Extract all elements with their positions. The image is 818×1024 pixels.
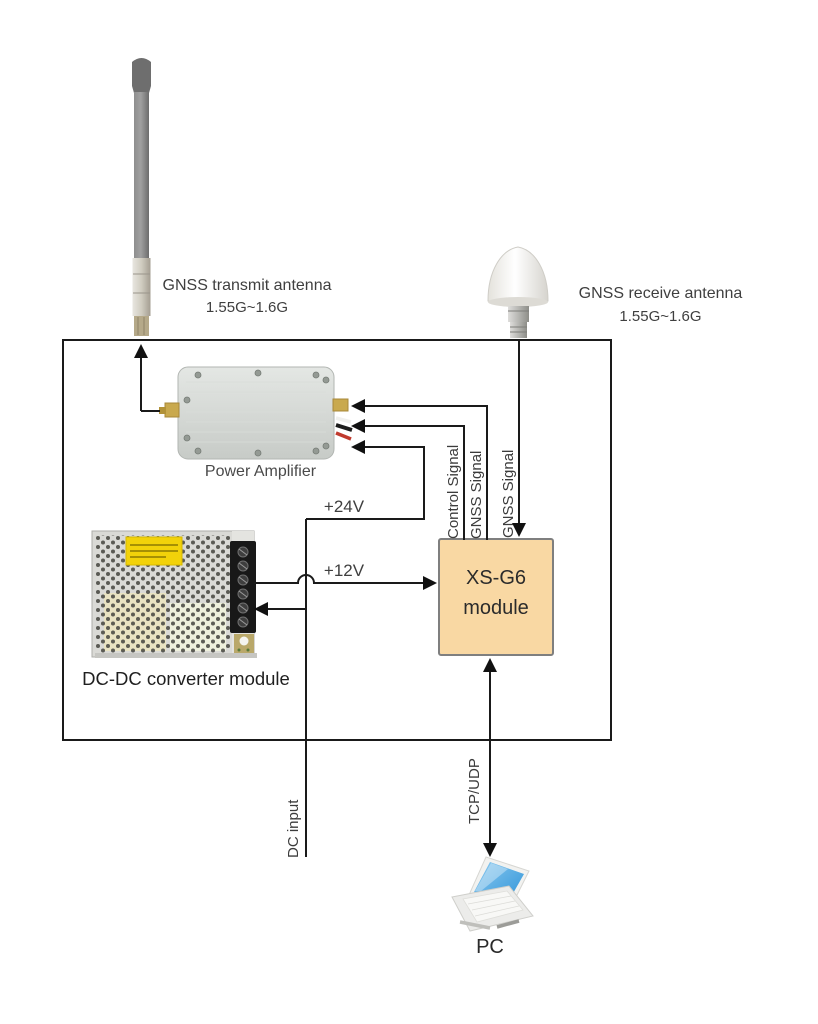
tcp-udp-label: TCP/UDP (466, 756, 483, 824)
antenna-mount (508, 306, 529, 322)
dc-input-label: DC input (285, 788, 302, 858)
supply-24v-label: +24V (316, 497, 372, 517)
pc-laptop (452, 857, 533, 931)
arrow-control-into-pa (351, 419, 365, 433)
pa-wire-red (336, 433, 351, 439)
arrow-24v-into-pa (351, 440, 365, 454)
transmit-antenna-freq: 1.55G~1.6G (148, 299, 346, 316)
arrow-up-to-antenna (134, 344, 148, 358)
control-signal-label: Control Signal (445, 431, 462, 539)
gnss-block-diagram: GNSS transmit antenna 1.55G~1.6G GNSS re… (0, 0, 818, 1024)
antenna-rod (134, 92, 149, 258)
arrow-dc-into-converter (254, 602, 268, 616)
gnss-signal-tx-label: GNSS Signal (468, 439, 485, 539)
pc-label: PC (458, 936, 522, 959)
receive-antenna-freq: 1.55G~1.6G (563, 308, 758, 325)
arrow-tcp-up (483, 658, 497, 672)
receive-antenna-label: GNSS receive antenna (563, 285, 758, 303)
supply-12v-label: +12V (316, 561, 372, 581)
pa-wire-white (336, 418, 351, 422)
antenna-rim (488, 297, 548, 307)
power-amplifier (159, 367, 352, 459)
arrow-tcp-down (483, 843, 497, 857)
arrow-gnss-into-pa (351, 399, 365, 413)
xsg6-title: XS-G6 (439, 567, 553, 590)
pa-sma-input (333, 399, 348, 411)
pa-body (178, 367, 334, 459)
pa-sma-output (165, 403, 179, 417)
antenna-cap (132, 58, 151, 93)
dcdc-converter (92, 531, 257, 658)
gnss-signal-rx-label: GNSS Signal (500, 438, 517, 538)
antenna-connector (134, 316, 149, 336)
dcdc-converter-label: DC-DC converter module (60, 668, 312, 690)
pa-wire-black (336, 425, 352, 430)
power-amplifier-label: Power Amplifier (178, 463, 343, 481)
arrow-12v-into-module (423, 576, 437, 590)
diagram-graphics (0, 0, 818, 1024)
antenna-connector (510, 322, 527, 338)
transmit-antenna-label: GNSS transmit antenna (148, 277, 346, 295)
receive-antenna (488, 247, 548, 338)
antenna-dome (488, 247, 548, 305)
pa-sma-output-tip (159, 407, 166, 414)
xsg6-subtitle: module (439, 597, 553, 620)
